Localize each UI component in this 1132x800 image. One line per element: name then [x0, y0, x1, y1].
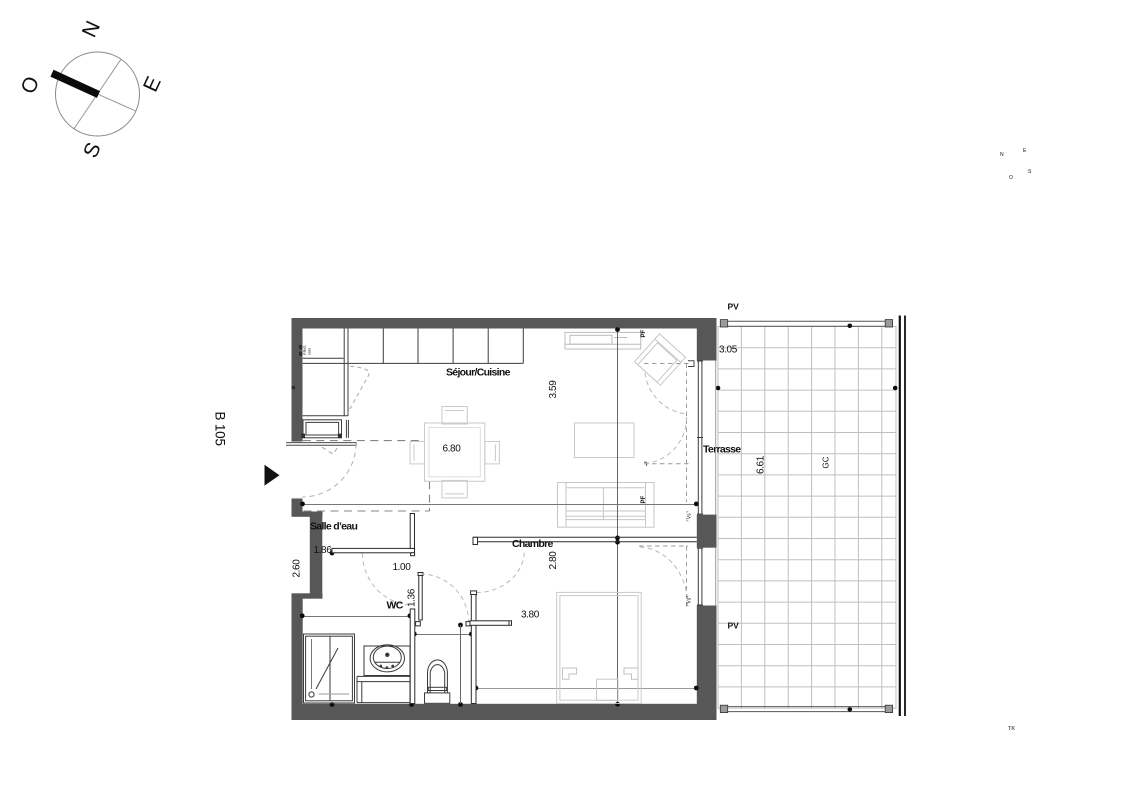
svg-text:⌜Vs⌝: ⌜Vs⌝ — [687, 511, 693, 522]
svg-text:Chambre: Chambre — [512, 538, 553, 550]
svg-text:PF: PF — [641, 329, 647, 337]
svg-text:1.00: 1.00 — [393, 562, 412, 573]
svg-text:3.59: 3.59 — [548, 380, 559, 399]
svg-text:N: N — [1000, 152, 1004, 158]
svg-text:3.80: 3.80 — [521, 610, 540, 621]
svg-text:PV: PV — [728, 621, 740, 631]
svg-text:2.60: 2.60 — [292, 559, 303, 578]
svg-text:PV: PV — [728, 302, 740, 312]
svg-text:⌜Vs⌝: ⌜Vs⌝ — [687, 595, 693, 606]
svg-text:3.05: 3.05 — [719, 345, 738, 356]
svg-text:O: O — [1009, 175, 1013, 181]
svg-text:6.80: 6.80 — [443, 444, 462, 455]
svg-text:6.61: 6.61 — [756, 455, 767, 474]
svg-text:PF: PF — [641, 495, 647, 503]
svg-text:WC: WC — [387, 600, 404, 612]
svg-text:GC: GC — [822, 456, 831, 468]
svg-text:Séjour/Cuisine: Séjour/Cuisine — [446, 367, 511, 379]
svg-text:B 105: B 105 — [213, 412, 228, 446]
svg-text:cels: cels — [307, 348, 312, 355]
svg-text:1.36: 1.36 — [407, 588, 418, 607]
svg-text:1.86: 1.86 — [314, 545, 333, 556]
svg-text:TK: TK — [1008, 726, 1015, 732]
svg-text:2.80: 2.80 — [548, 551, 559, 570]
svg-text:Terrasse: Terrasse — [703, 444, 741, 456]
svg-text:Salle d’eau: Salle d’eau — [310, 521, 357, 533]
